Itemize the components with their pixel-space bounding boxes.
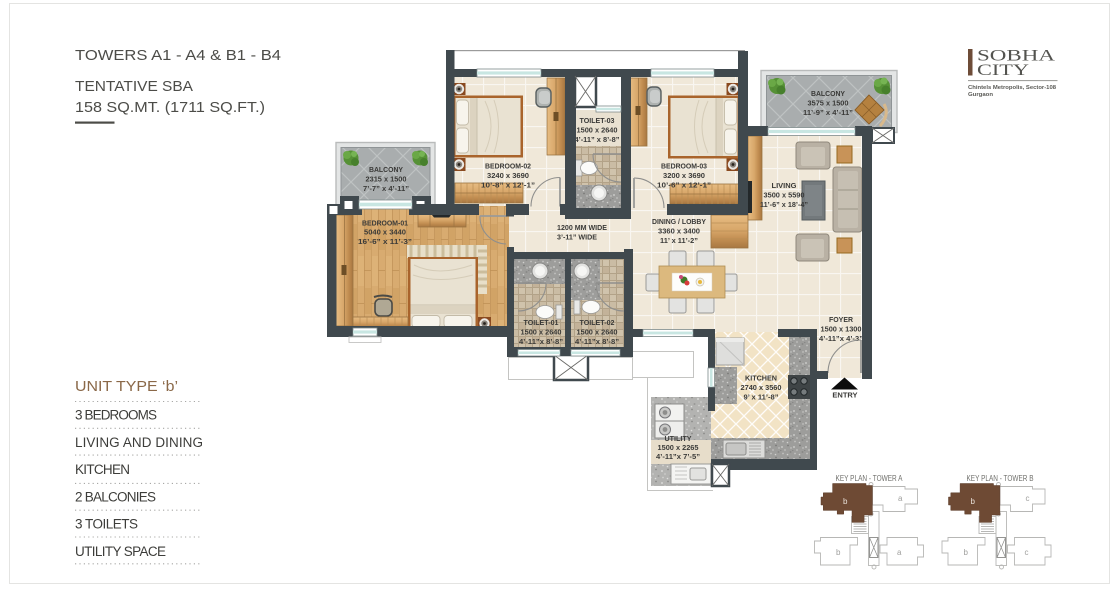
svg-text:TOILET-02: TOILET-02 <box>580 318 615 327</box>
svg-text:b: b <box>971 497 976 506</box>
svg-text:16’-6” x 11’-3”: 16’-6” x 11’-3” <box>358 237 412 246</box>
svg-text:158 SQ.MT. (1711 SQ.FT.): 158 SQ.MT. (1711 SQ.FT.) <box>75 99 265 116</box>
svg-text:10’-8” x 12’-1”: 10’-8” x 12’-1” <box>481 181 535 190</box>
svg-text:1500 x 2265: 1500 x 2265 <box>658 443 699 452</box>
svg-text:11’ x 11’-2”: 11’ x 11’-2” <box>660 236 698 245</box>
svg-text:ENTRY: ENTRY <box>832 391 857 400</box>
svg-text:KITCHEN: KITCHEN <box>75 462 130 477</box>
svg-text:TOILET-03: TOILET-03 <box>580 116 615 125</box>
svg-text:KEY PLAN - TOWER A: KEY PLAN - TOWER A <box>836 474 904 483</box>
svg-text:1500 x 2640: 1500 x 2640 <box>577 126 618 135</box>
svg-text:TOWERS A1 - A4 & B1 - B4: TOWERS A1 - A4 & B1 - B4 <box>75 47 281 64</box>
svg-text:4’-11” x 8’-8”: 4’-11” x 8’-8” <box>575 135 620 144</box>
svg-text:b: b <box>843 497 848 506</box>
svg-text:7’-7” x 4’-11”: 7’-7” x 4’-11” <box>363 184 409 193</box>
svg-text:b: b <box>964 548 969 557</box>
svg-text:BEDROOM-02: BEDROOM-02 <box>485 162 531 171</box>
svg-text:2740 x 3560: 2740 x 3560 <box>741 383 782 392</box>
svg-text:c: c <box>1026 494 1030 503</box>
svg-text:3 TOILETS: 3 TOILETS <box>75 517 138 532</box>
svg-text:UTILITY: UTILITY <box>665 434 692 443</box>
svg-text:2315 x 1500: 2315 x 1500 <box>366 175 407 184</box>
svg-text:UNIT TYPE ‘b’: UNIT TYPE ‘b’ <box>75 378 178 395</box>
svg-text:BEDROOM-01: BEDROOM-01 <box>362 219 408 228</box>
svg-text:KEY PLAN - TOWER B: KEY PLAN - TOWER B <box>967 474 1034 483</box>
svg-text:DINING / LOBBY: DINING / LOBBY <box>652 217 706 226</box>
svg-text:1500 x 2640: 1500 x 2640 <box>577 328 618 337</box>
svg-text:Chintels Metropolis, Sector-10: Chintels Metropolis, Sector-108 <box>968 85 1056 91</box>
svg-text:a: a <box>898 494 903 503</box>
svg-text:CITY: CITY <box>977 62 1029 79</box>
svg-text:KITCHEN: KITCHEN <box>745 374 777 383</box>
svg-text:1500 x 1300: 1500 x 1300 <box>821 325 862 334</box>
svg-text:3’-11” WIDE: 3’-11” WIDE <box>557 233 597 242</box>
svg-text:3240 x 3690: 3240 x 3690 <box>487 171 529 180</box>
svg-text:1500 x 2640: 1500 x 2640 <box>521 328 562 337</box>
svg-text:1200 MM WIDE: 1200 MM WIDE <box>557 223 607 232</box>
svg-text:a: a <box>897 548 902 557</box>
svg-text:b: b <box>836 548 841 557</box>
svg-text:c: c <box>1025 548 1029 557</box>
svg-text:9’ x 11’-8”: 9’ x 11’-8” <box>744 393 779 402</box>
svg-text:11’-9” x 4’-11”: 11’-9” x 4’-11” <box>803 108 853 117</box>
svg-text:5040 x 3440: 5040 x 3440 <box>364 228 406 237</box>
svg-text:4’-11”x 8’-8”: 4’-11”x 8’-8” <box>519 337 563 346</box>
svg-text:TENTATIVE SBA: TENTATIVE SBA <box>75 78 193 95</box>
svg-text:4’-11”x 4’-3”: 4’-11”x 4’-3” <box>819 334 863 343</box>
svg-text:UTILITY SPACE: UTILITY SPACE <box>75 544 166 559</box>
svg-text:LIVING AND DINING: LIVING AND DINING <box>75 435 203 450</box>
svg-text:LIVING: LIVING <box>772 181 797 190</box>
svg-text:BEDROOM-03: BEDROOM-03 <box>661 162 707 171</box>
svg-text:TOILET-01: TOILET-01 <box>524 318 559 327</box>
svg-text:3200 x 3690: 3200 x 3690 <box>663 171 705 180</box>
svg-text:Gurgaon: Gurgaon <box>968 92 993 98</box>
svg-text:4’-11”x 8’-8”: 4’-11”x 8’-8” <box>575 337 619 346</box>
svg-text:11’-6” x 18’-4”: 11’-6” x 18’-4” <box>760 200 808 209</box>
svg-text:FOYER: FOYER <box>829 315 854 324</box>
svg-text:3 BEDROOMS: 3 BEDROOMS <box>75 408 157 423</box>
svg-text:3500 x 5590: 3500 x 5590 <box>764 191 805 200</box>
svg-text:4’-11”x 7’-5”: 4’-11”x 7’-5” <box>656 452 700 461</box>
svg-text:10’-6” x 12’-1”: 10’-6” x 12’-1” <box>657 181 711 190</box>
svg-text:BALCONY: BALCONY <box>811 89 845 98</box>
svg-text:3360 x 3400: 3360 x 3400 <box>658 227 700 236</box>
svg-text:2 BALCONIES: 2 BALCONIES <box>75 490 156 505</box>
svg-text:BALCONY: BALCONY <box>369 165 403 174</box>
svg-text:3575 x 1500: 3575 x 1500 <box>808 99 849 108</box>
